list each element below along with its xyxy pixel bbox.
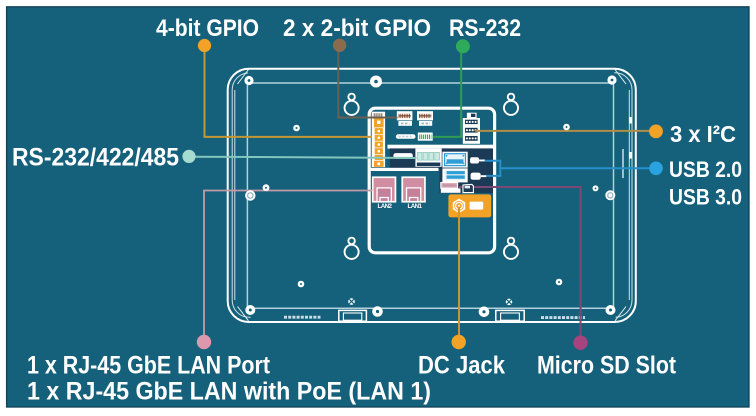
svg-text:Micro SD Slot: Micro SD Slot xyxy=(537,352,677,380)
svg-text:1 x RJ-45 GbE LAN Port: 1 x RJ-45 GbE LAN Port xyxy=(27,352,271,380)
svg-text:2 x 2-bit GPIO: 2 x 2-bit GPIO xyxy=(283,15,431,42)
svg-text:LAN2: LAN2 xyxy=(378,203,393,210)
svg-text:RS-232/422/485: RS-232/422/485 xyxy=(12,144,179,172)
svg-text:RS-232: RS-232 xyxy=(449,15,521,42)
svg-text:USB 3.0: USB 3.0 xyxy=(669,184,742,209)
svg-text:DC Jack: DC Jack xyxy=(418,352,505,380)
svg-text:USB 2.0: USB 2.0 xyxy=(669,157,742,182)
svg-text:3 x I²C: 3 x I²C xyxy=(670,121,736,147)
svg-text:4-bit GPIO: 4-bit GPIO xyxy=(156,15,259,42)
svg-text:LAN1: LAN1 xyxy=(408,203,423,210)
svg-text:1 x RJ-45 GbE LAN with PoE (LA: 1 x RJ-45 GbE LAN with PoE (LAN 1) xyxy=(27,378,431,406)
